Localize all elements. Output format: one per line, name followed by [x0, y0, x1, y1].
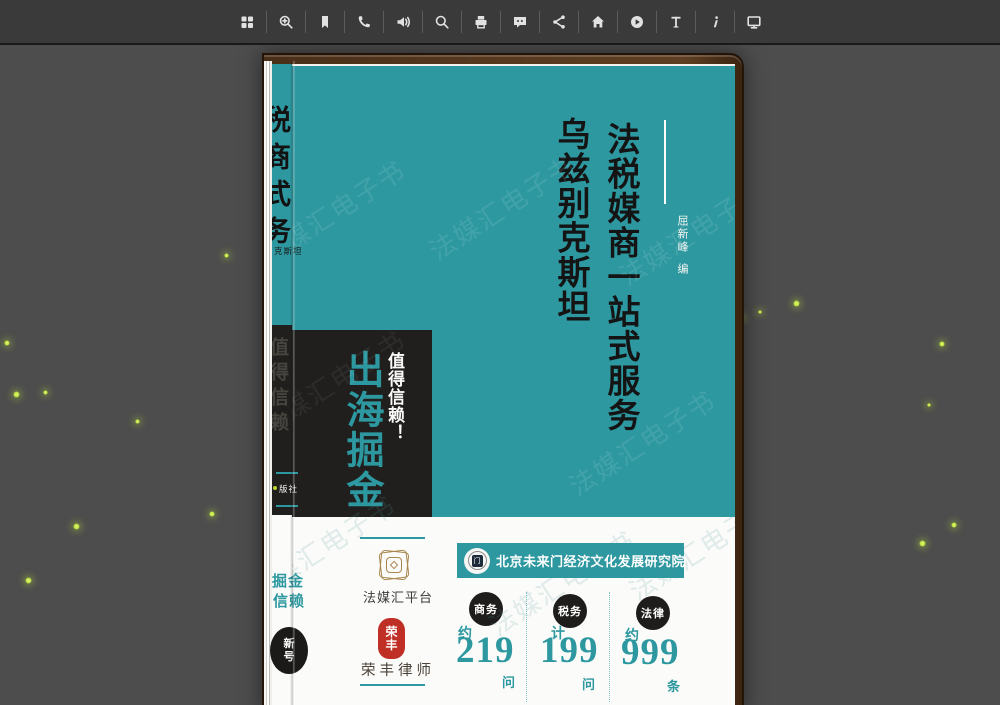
institute-logo-icon: 门 — [464, 548, 490, 574]
cover-slogan-box: 出海掘金 值得信赖！ — [292, 330, 432, 517]
chat-icon — [512, 14, 528, 30]
front-cover: 法税媒商一站式服务 乌兹别克斯坦 屈新峰 编 出海掘金 值得信赖！ 法媒汇平台 … — [292, 64, 735, 705]
cover-hinge-fold — [290, 61, 295, 705]
band-divider-top — [360, 537, 425, 539]
volume-button[interactable] — [384, 0, 422, 43]
info-button[interactable] — [696, 0, 734, 43]
home-icon — [590, 14, 606, 30]
firefly-dot — [13, 391, 20, 398]
display-button[interactable] — [735, 0, 773, 43]
firefly-dot — [793, 300, 800, 307]
stat-category-badge: 法律 — [636, 596, 670, 630]
book-cover-page[interactable]: 税商式务 克斯坦 值得信赖 版社 掘金 信赖 新 号 法税媒商一站式服务 乌兹别… — [262, 53, 744, 705]
volume-icon — [395, 14, 411, 30]
bookmark-icon — [317, 14, 333, 30]
zoom-in-icon — [278, 14, 294, 30]
spine-publisher-fragment: 版社 — [279, 483, 298, 495]
firefly-dot — [135, 419, 140, 424]
lawfirm-seal-icon: 荣 丰 — [378, 618, 405, 659]
home-button[interactable] — [579, 0, 617, 43]
firefly-dot — [951, 522, 957, 528]
spine-publisher-dot — [273, 486, 277, 490]
stat-unit: 问 — [582, 674, 595, 693]
stat-block-business: 商务 约 219 问 — [456, 592, 526, 702]
page-edges — [264, 61, 272, 705]
cover-author: 屈新峰 编 — [658, 215, 706, 276]
stat-block-legal: 法律 约 999 条 — [609, 592, 687, 702]
platform-logo-icon — [377, 548, 411, 582]
text-icon — [668, 14, 684, 30]
firefly-dot — [209, 511, 215, 517]
chat-button[interactable] — [501, 0, 539, 43]
zoom-in-button[interactable] — [267, 0, 305, 43]
stat-value: 999 — [621, 636, 680, 670]
print-icon — [473, 14, 489, 30]
bookmark-button[interactable] — [306, 0, 344, 43]
share-button[interactable] — [540, 0, 578, 43]
ebook-viewer: 税商式务 克斯坦 值得信赖 版社 掘金 信赖 新 号 法税媒商一站式服务 乌兹别… — [0, 0, 1000, 705]
cover-decorative-line — [664, 120, 666, 204]
slogan-sub: 值得信赖！ — [385, 352, 404, 442]
play-button[interactable] — [618, 0, 656, 43]
play-icon — [629, 14, 645, 30]
phone-icon — [356, 14, 372, 30]
spine-region-fragment: 克斯坦 — [274, 245, 303, 257]
institute-banner: 门 北京未来门经济文化发展研究院 — [457, 543, 684, 578]
spine-title-fragment-clip: 税商式务 — [272, 105, 302, 320]
spine-band-fragment: 掘金 — [272, 570, 304, 591]
firefly-dot — [758, 310, 762, 314]
print-button[interactable] — [462, 0, 500, 43]
stat-unit: 问 — [502, 672, 515, 691]
lawfirm-label: 荣丰律师 — [350, 659, 446, 680]
toolbar — [0, 0, 1000, 45]
search-button[interactable] — [423, 0, 461, 43]
firefly-dot — [25, 577, 32, 584]
spine-title-fragment: 税商式务 — [272, 105, 290, 253]
search-icon — [434, 14, 450, 30]
display-icon — [746, 14, 762, 30]
stats-row: 商务 约 219 问 税务 计 199 问 法律 约 999 条 — [456, 592, 689, 702]
stat-block-tax: 税务 计 199 问 — [526, 592, 609, 702]
firefly-dot — [73, 523, 80, 530]
cover-title-main: 法税媒商一站式服务 — [604, 122, 639, 433]
info-icon — [707, 14, 723, 30]
thumbnails-button[interactable] — [228, 0, 266, 43]
stat-value: 199 — [540, 634, 599, 668]
spine-slogan-fragment: 值得信赖 — [272, 337, 291, 437]
author-role: 编 — [674, 263, 690, 276]
spine-band-fragment: 信赖 — [273, 590, 305, 611]
institute-name: 北京未来门经济文化发展研究院 — [496, 551, 685, 570]
thumbnails-icon — [239, 14, 255, 30]
cover-title-region: 乌兹别克斯坦 — [554, 117, 589, 324]
platform-logo-label: 法媒汇平台 — [354, 587, 442, 606]
share-icon — [551, 14, 567, 30]
stat-unit: 条 — [667, 676, 680, 695]
firefly-dot — [4, 340, 10, 346]
band-divider-bottom — [360, 684, 425, 686]
stat-category-badge: 商务 — [469, 592, 503, 626]
firefly-dot — [224, 253, 229, 258]
author-name: 屈新峰 — [674, 215, 690, 254]
firefly-dot — [939, 341, 945, 347]
phone-button[interactable] — [345, 0, 383, 43]
text-button[interactable] — [657, 0, 695, 43]
spine-badge: 新 号 — [270, 627, 308, 674]
firefly-dot — [927, 403, 931, 407]
slogan-main: 出海掘金 — [341, 350, 381, 510]
firefly-dot — [919, 540, 926, 547]
stat-value: 219 — [456, 634, 515, 668]
firefly-dot — [43, 390, 48, 395]
